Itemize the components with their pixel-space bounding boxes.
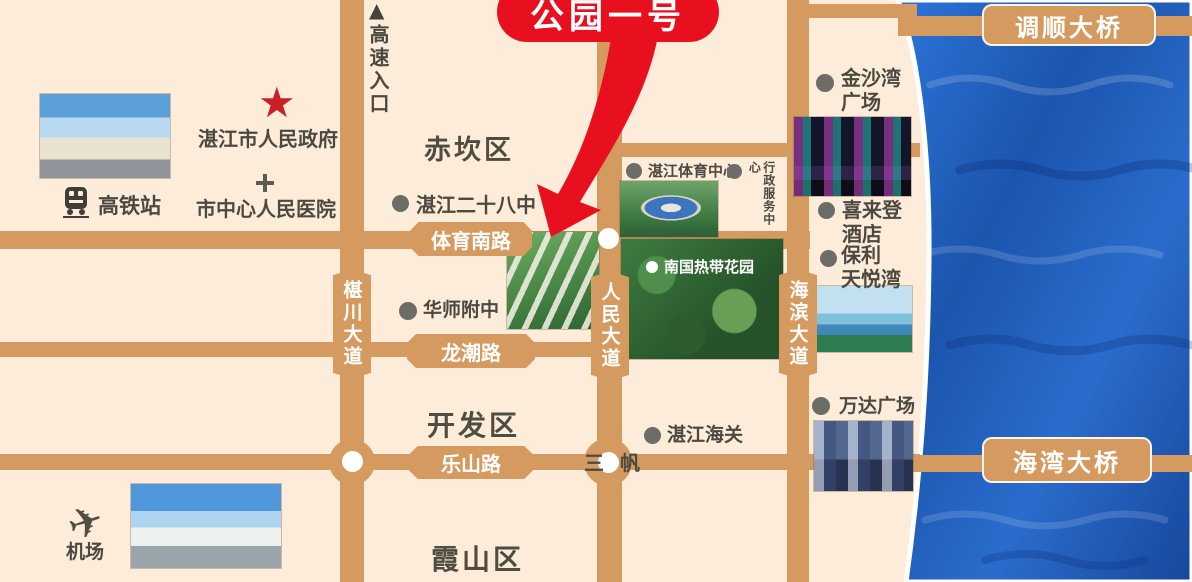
road-label-renmin-avenue: 人民大道 (591, 274, 629, 378)
poly-seaview-photo (812, 286, 912, 352)
poi-dot-white (646, 261, 658, 273)
bridge-label-tiaoshun: 调顺大桥 (982, 4, 1156, 46)
bridge-label-haiwan: 海湾大桥 (982, 437, 1152, 483)
bridge-label-text: 调顺大桥 (1015, 8, 1123, 43)
project-callout: 公园一号 (497, 0, 719, 42)
poi-dot (392, 195, 409, 212)
poi-sanfan: 三帆 (584, 451, 656, 475)
poi-dot (399, 302, 417, 320)
poi-school-28: 湛江二十八中 (416, 193, 536, 217)
poi-admin-center: 行政服务中心 (747, 161, 776, 235)
poi-dot (626, 163, 642, 179)
bridge-label-text: 海湾大桥 (1013, 443, 1121, 478)
junction-marker-shenchuan-leshan (342, 451, 363, 472)
road-label-text: 椹川大道 (339, 280, 366, 368)
district-kaifaqu: 开发区 (427, 404, 520, 444)
poi-huashi-school: 华师附中 (423, 299, 499, 322)
poi-tropical-garden: 南国热带花园 (646, 256, 754, 277)
poi-dot (820, 250, 837, 267)
district-xiashan: 霞山区 (431, 538, 524, 578)
coastline (898, 0, 1192, 582)
train-icon (62, 186, 90, 218)
poi-airport: 机场 (66, 541, 104, 564)
poi-label: 南国热带花园 (664, 256, 754, 277)
road-label-longchao: 龙潮路 (407, 334, 535, 368)
road-label-text: 龙潮路 (441, 337, 501, 366)
road-label-haibin-avenue: 海滨大道 (779, 272, 817, 376)
poi-dot (816, 74, 834, 92)
airport-photo (131, 484, 281, 568)
railway-station-photo (40, 94, 170, 178)
hospital-cross-icon (256, 174, 274, 192)
road-label-shenchuan-avenue: 椹川大道 (333, 272, 371, 376)
location-map: 体育南路 龙潮路 乐山路 椹川大道 人民大道 海滨大道 调顺大桥 海湾大桥 赤坎… (0, 0, 1192, 582)
road-label-tiyu-south: 体育南路 (410, 222, 532, 256)
poi-dot (727, 164, 742, 179)
junction-marker-renmin-tiyu (598, 228, 619, 249)
poi-wanda-plaza: 万达广场 (839, 395, 915, 418)
poi-poly-tianyuewan: 保利 天悦湾 (841, 243, 901, 291)
wanda-plaza-photo (814, 421, 913, 491)
poi-railway-station: 高铁站 (98, 194, 161, 219)
poi-customs: 湛江海关 (667, 424, 743, 447)
road-label-text: 乐山路 (441, 448, 501, 477)
poi-highway-entrance: 高速入口 (366, 24, 390, 116)
highway-triangle-up-icon: ▲ (369, 0, 384, 22)
government-star-icon: ★ (258, 78, 296, 127)
poi-government: 湛江市人民政府 (198, 127, 338, 151)
jinshawan-photo (794, 117, 911, 196)
road-label-leshan: 乐山路 (409, 446, 533, 479)
poi-hospital: 市中心人民医院 (196, 197, 336, 221)
road-label-text: 海滨大道 (785, 280, 812, 368)
poi-dot (812, 397, 830, 415)
sports-center-photo (620, 181, 718, 237)
poi-sheraton-hotel: 喜来登 酒店 (842, 198, 902, 246)
poi-jinshawan-plaza: 金沙湾 广场 (841, 66, 901, 114)
road-label-text: 人民大道 (597, 282, 624, 370)
project-name: 公园一号 (530, 0, 686, 38)
district-chikan: 赤坎区 (424, 128, 514, 167)
poi-sports-center: 湛江体育中心 (648, 162, 738, 180)
poi-dot (818, 202, 835, 219)
road-label-text: 体育南路 (431, 225, 511, 254)
poi-dot (644, 427, 661, 444)
